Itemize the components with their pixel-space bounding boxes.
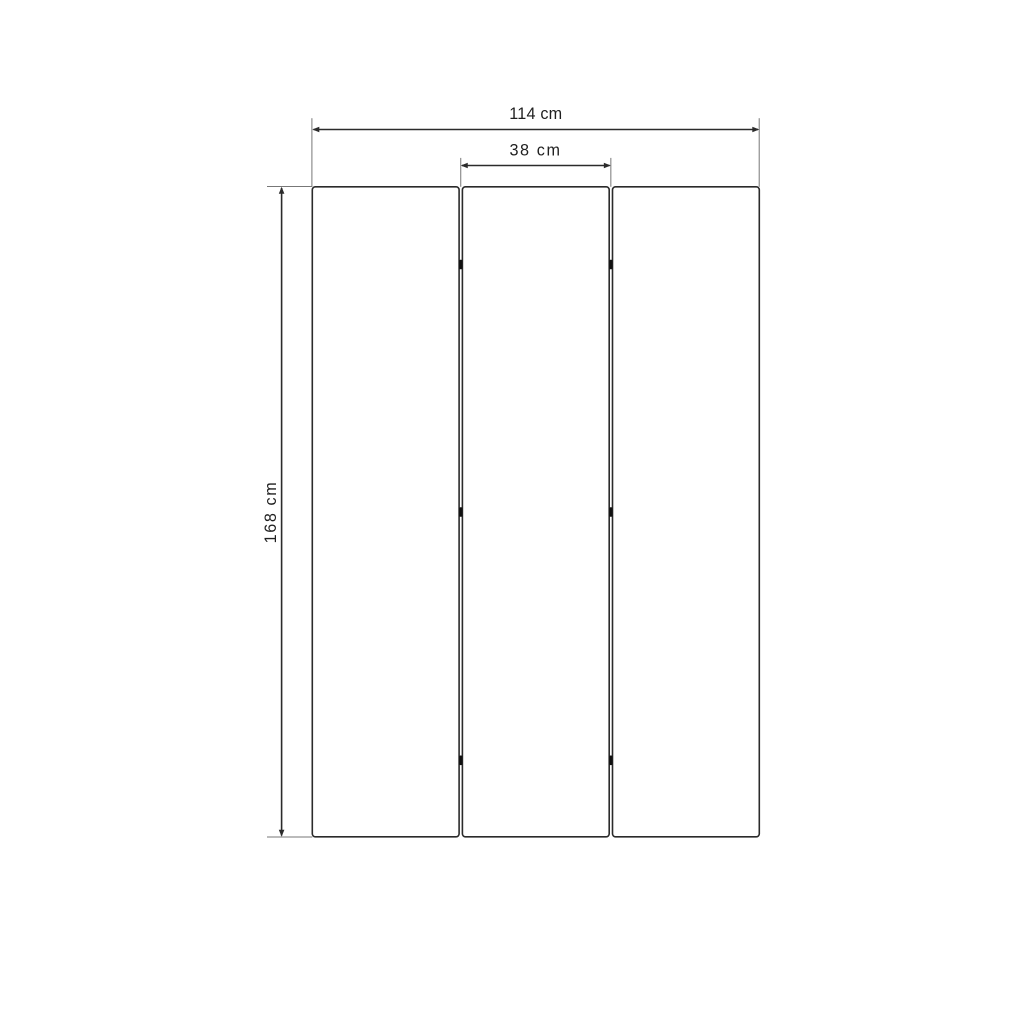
svg-text:38 cm: 38 cm bbox=[509, 142, 561, 160]
svg-text:168 cm: 168 cm bbox=[262, 481, 280, 544]
svg-text:114 cm: 114 cm bbox=[509, 105, 562, 123]
